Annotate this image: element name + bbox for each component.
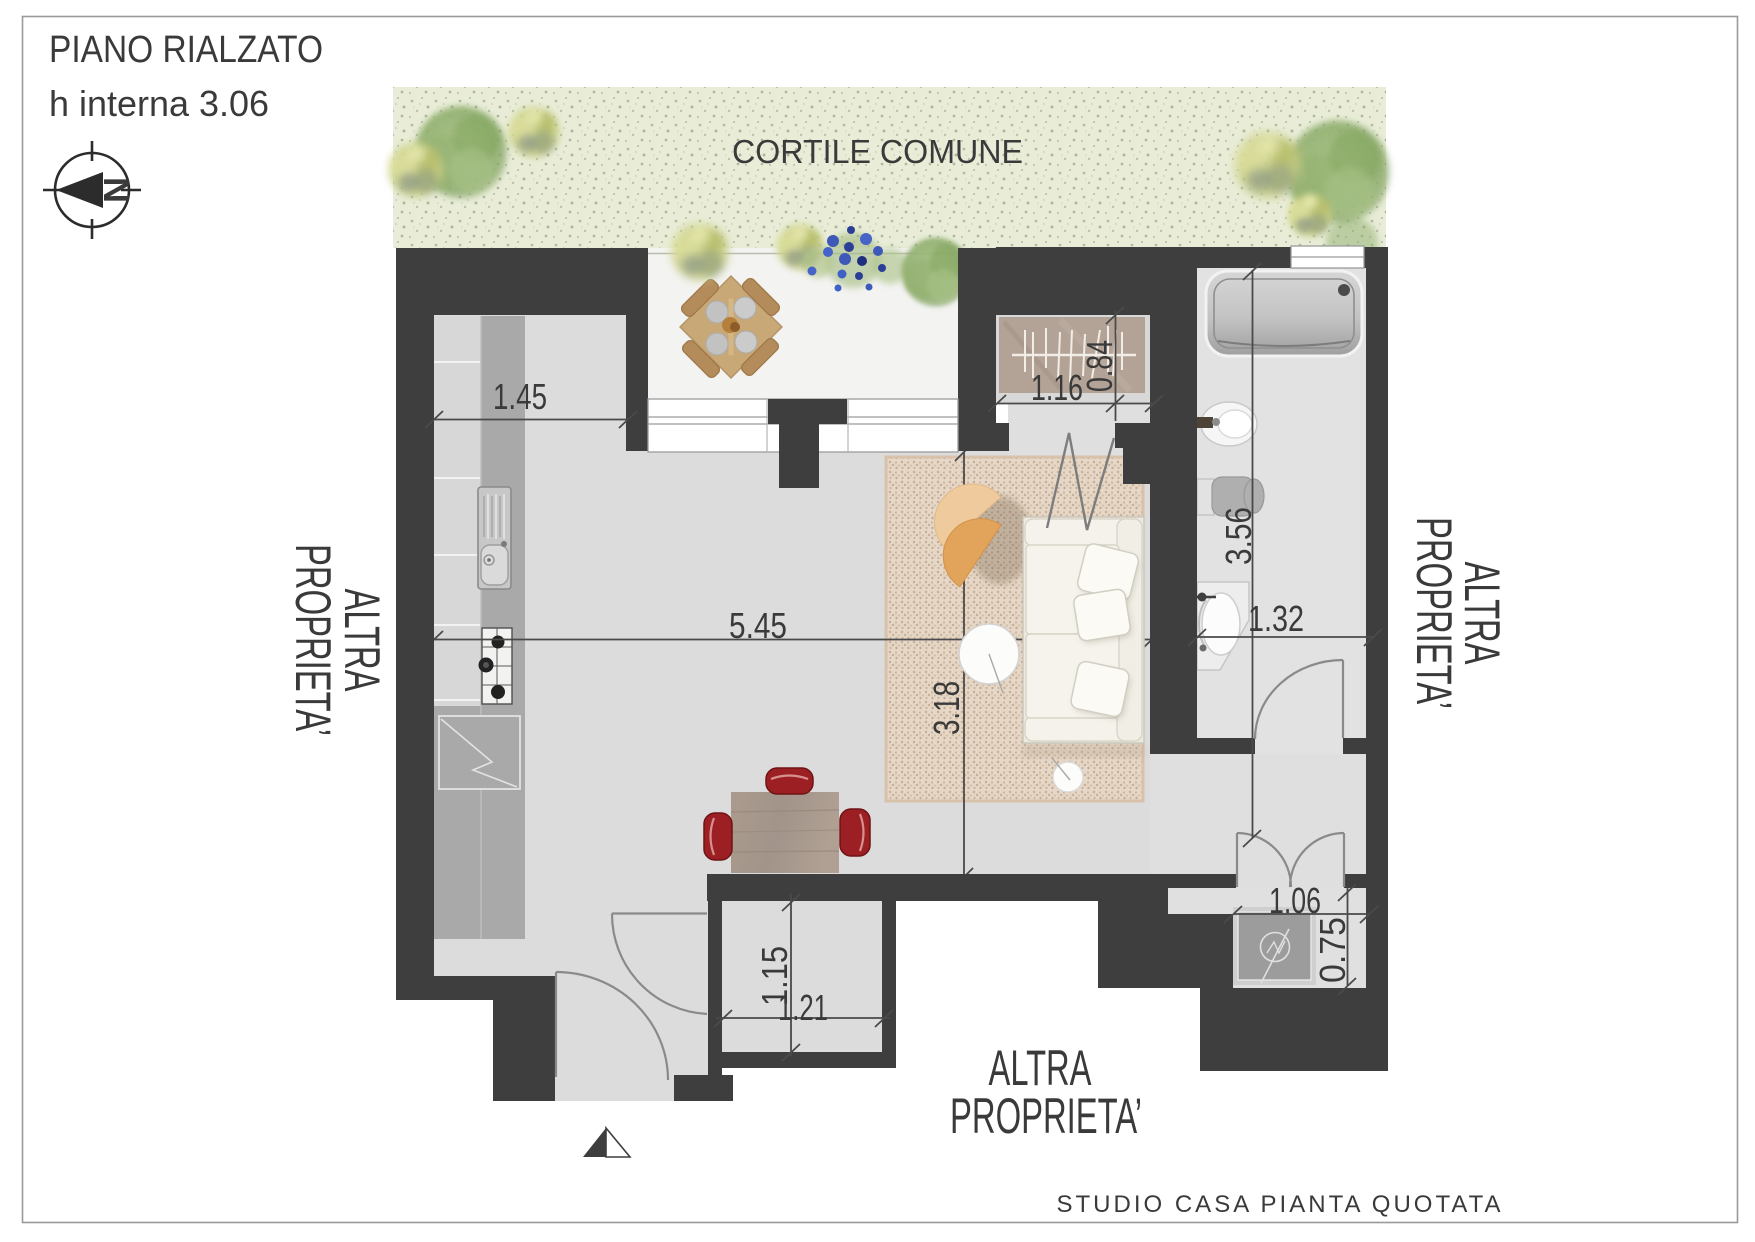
- svg-text:1.45: 1.45: [493, 376, 547, 417]
- svg-text:3.18: 3.18: [926, 681, 967, 735]
- svg-text:0.75: 0.75: [1312, 917, 1353, 983]
- svg-text:1.06: 1.06: [1269, 880, 1321, 921]
- svg-text:CORTILE COMUNE: CORTILE COMUNE: [732, 133, 1023, 170]
- svg-text:h interna 3.06: h interna 3.06: [49, 83, 269, 124]
- svg-text:3.56: 3.56: [1218, 507, 1259, 565]
- svg-text:PIANO RIALZATO: PIANO RIALZATO: [49, 29, 323, 71]
- svg-text:1.32: 1.32: [1248, 598, 1304, 639]
- svg-text:1.16: 1.16: [1031, 367, 1083, 408]
- svg-text:PROPRIETA’: PROPRIETA’: [1406, 517, 1462, 709]
- svg-text:0.84: 0.84: [1079, 340, 1120, 392]
- svg-text:1.21: 1.21: [778, 987, 828, 1028]
- svg-text:5.45: 5.45: [729, 605, 787, 646]
- svg-text:PROPRIETA’: PROPRIETA’: [950, 1088, 1142, 1144]
- svg-text:N: N: [96, 177, 137, 203]
- svg-text:PROPRIETA’: PROPRIETA’: [285, 544, 341, 736]
- svg-text:ALTRA: ALTRA: [334, 589, 390, 692]
- svg-text:STUDIO CASA PIANTA QUOTATA: STUDIO CASA PIANTA QUOTATA: [1057, 1191, 1504, 1218]
